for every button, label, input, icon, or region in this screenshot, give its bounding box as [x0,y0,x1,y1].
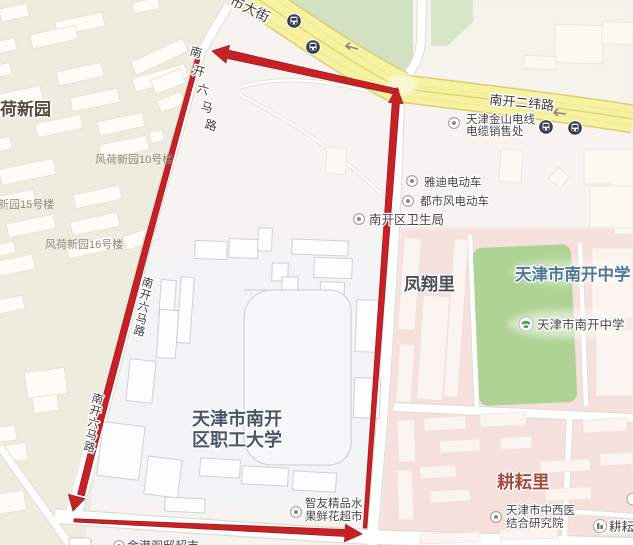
svg-text:风荷新园: 风荷新园 [0,99,51,119]
svg-text:新园15号楼: 新园15号楼 [0,197,54,211]
svg-text:果鲜花超市: 果鲜花超市 [305,509,363,523]
svg-text:雅迪电动车: 雅迪电动车 [424,175,482,189]
svg-text:风荷新园16号楼: 风荷新园16号楼 [45,237,123,251]
svg-text:天津市南开中学: 天津市南开中学 [537,317,625,332]
svg-text:区职工大学: 区职工大学 [192,429,282,450]
svg-text:耕耘: 耕耘 [609,519,633,534]
svg-text:金港观邸超市: 金港观邸超市 [127,538,199,545]
svg-text:风荷新园10号楼: 风荷新园10号楼 [95,152,173,166]
svg-text:电缆销售处: 电缆销售处 [466,124,524,138]
svg-text:都市风电动车: 都市风电动车 [420,194,489,208]
svg-text:天津市中西医: 天津市中西医 [506,503,575,517]
svg-text:智友精品水: 智友精品水 [305,496,363,510]
svg-text:凤翔里: 凤翔里 [404,274,455,294]
svg-text:天津市南开: 天津市南开 [192,408,282,429]
svg-text:天津市南开中学: 天津市南开中学 [515,264,631,284]
svg-text:结合研究院: 结合研究院 [506,516,564,530]
svg-text:耕耘里: 耕耘里 [497,472,550,492]
svg-text:天津金山电线: 天津金山电线 [466,112,535,126]
svg-text:南开区卫生局: 南开区卫生局 [369,212,444,227]
